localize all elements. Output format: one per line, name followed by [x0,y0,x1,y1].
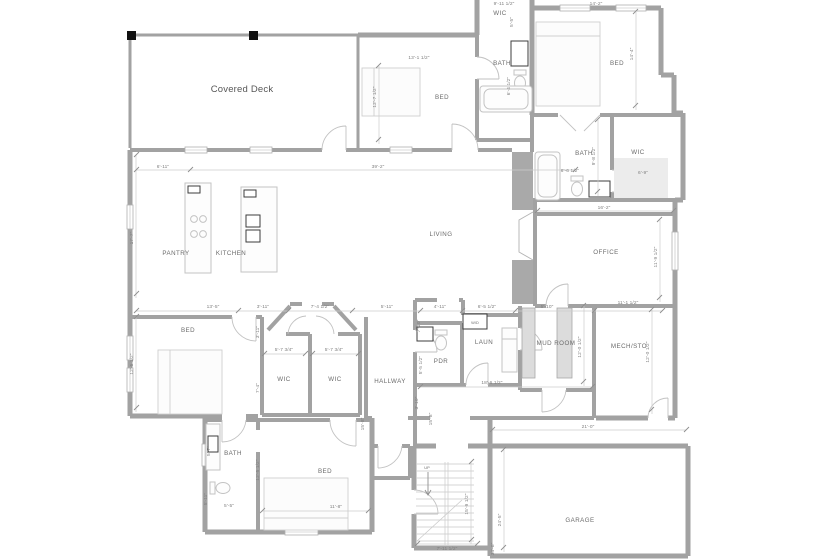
door-arc [542,390,566,412]
room-label-wic-top: WIC [493,10,506,17]
door-arc [330,420,356,446]
fireplace-block-bottom [512,260,533,304]
dim-label: 5'-5" [509,17,515,27]
toilet-tank-icon [514,70,526,75]
room-label-bath-top: BATH [493,60,511,67]
room-label-office: OFFICE [593,249,618,256]
range-burner-icon [191,231,198,238]
dim-label: 5'-5" [224,503,234,509]
washer-icon [502,328,517,372]
appliance-icon [244,190,256,197]
dim-label: 11'-8" [330,504,343,510]
range-burner-icon [200,216,207,223]
door-arc [232,317,256,341]
dim-label: 5'-10" [541,304,554,310]
door-leaf [560,115,600,131]
dim-label: 5'-7 3/4" [325,347,344,353]
dim-label: 13'-1 1/2" [408,55,429,61]
door-arc [546,284,568,306]
dim-label: 14'-4" [629,47,635,60]
dim-label: 5'-7" [206,446,212,456]
fireplace-block-top [512,152,533,210]
room-label-bath-south: BATH [224,450,242,457]
room-label-bed-west: BED [181,327,195,334]
kitchen-fixtures [185,183,277,273]
dim-label: 13'-5" [207,304,220,310]
dim-label: 9'-11 1/2" [494,1,515,7]
toilet-tank-icon [210,482,215,494]
door-arc [414,490,438,514]
up-arrow-icon [425,472,431,495]
range-burner-icon [200,231,207,238]
dim-label: 18'-6 1/2" [481,380,502,386]
room-label-wic-east: WIC [631,149,644,156]
toilet-icon [572,182,583,196]
room-label-bed-ne: BED [610,60,624,67]
island-sink-icon [246,230,260,242]
door-arc [378,446,402,468]
dim-label: 6'-4 1/2" [506,77,512,96]
closet-shelf [614,158,668,198]
dim-label: 11'-1 1/2" [618,300,639,306]
dim-label: 5'-5 1/2" [418,356,424,375]
toilet-tank-icon [435,330,447,335]
door-arc [452,124,478,150]
toilet-icon [436,336,447,350]
dim-label: 34'-8" [490,542,496,555]
range-burner-icon [191,216,198,223]
bathtub-basin [538,155,557,197]
room-label-mud-room: MUD ROOM [537,340,576,347]
island-sink-icon [246,215,260,227]
dim-label: 12'-0 1/2" [577,336,583,357]
dim-label: 16'-2" [598,205,611,211]
floor-plan-drawing: 6'-11" 17'-7" 39'-2" 9'-11 1/2" 5'-5" 13… [0,0,825,560]
dim-label: 17'-7" [129,231,135,244]
dim-label: 3'-10" [414,396,420,409]
pantry-counter [185,183,211,273]
dim-label: 7'-11 1/2" [437,546,458,552]
dim-label: 4'-11" [434,304,447,310]
dim-label: 7'-10" [416,319,422,332]
dim-label: 39'-2" [372,164,385,170]
dim-label: 14'-2" [590,1,603,7]
door-arc [222,420,246,442]
room-label-kitchen: KITCHEN [216,250,246,257]
bed-icon [536,22,600,106]
room-label-pantry: PANTRY [162,250,189,257]
floor-plan-page: 6'-11" 17'-7" 39'-2" 9'-11 1/2" 5'-5" 13… [0,0,825,560]
stair-stringer [445,462,448,545]
bathtub-basin [484,89,528,109]
dim-label: 15'-9 1/2" [464,493,470,514]
room-label-covered-deck: Covered Deck [211,84,274,95]
bed-icon [158,350,222,414]
door-arc [322,126,346,150]
deck-post-icon [127,31,136,40]
dim-label: 21'-0" [582,424,595,430]
dim-label: 6'-11" [157,164,170,170]
room-label-bath-east: BATH [575,150,593,157]
fireplace-icon [512,152,533,304]
dim-label: 15'-8" [428,412,434,425]
bed-icon [264,478,348,530]
dim-label: 6'-9" [638,170,648,176]
room-label-bed-south: BED [318,468,332,475]
room-label-wic-2: WIC [328,376,341,383]
dim-label: 3'-11" [257,304,270,310]
appliance-icon [188,186,200,193]
dim-label: 7'-4 1/2" [311,304,330,310]
room-label-laun: LAUN [475,339,493,346]
dim-label: 5'-11" [203,493,209,506]
dim-label: 15'-8" [360,417,366,430]
deck-post-icon [249,31,258,40]
dim-label: 3'-11" [255,326,261,339]
dim-label: 12'-5 1/2" [129,353,135,374]
dim-label: 6'-5 1/2" [478,304,497,310]
door-arc [648,398,668,418]
room-label-living: LIVING [430,231,453,238]
room-label-garage: GARAGE [565,517,594,524]
toilet-tank-icon [571,176,583,181]
dim-label: 24'-5" [497,513,503,526]
door-arc [288,316,334,334]
dim-label: 5'-7 3/4" [275,347,294,353]
room-label-mech-sto: MECH/STO [611,343,647,350]
room-label-wd: W/D [471,320,479,325]
dim-label: 6'-6 1/2" [561,168,580,174]
dim-label: 11'-9 1/2" [653,246,659,267]
bed-icon [362,68,420,116]
vanity-sink-icon [511,41,528,66]
fireplace-niche [519,212,533,260]
dim-label: 12'-5 1/2" [255,459,261,480]
room-label-hallway: HALLWAY [374,378,406,385]
dim-label: 5'-11" [381,304,394,310]
dim-label: 12'-7 1/2" [372,86,378,107]
locker-bench-icon [522,308,535,378]
room-label-up: UP [424,465,430,470]
room-label-bed-top: BED [435,94,449,101]
room-label-wic-1: WIC [277,376,290,383]
dim-label: 7'-4" [255,383,261,393]
room-label-pdr: PDR [434,358,448,365]
toilet-icon [216,483,230,494]
